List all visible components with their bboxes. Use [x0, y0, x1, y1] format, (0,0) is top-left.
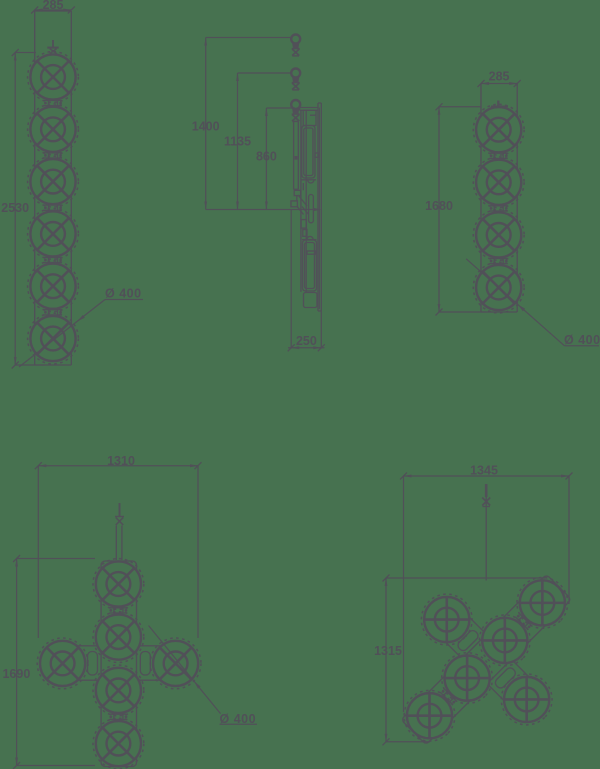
svg-text:1310: 1310 — [107, 454, 135, 468]
svg-text:860: 860 — [256, 149, 277, 163]
svg-text:1345: 1345 — [470, 464, 498, 478]
svg-text:1400: 1400 — [192, 120, 220, 134]
svg-text:1135: 1135 — [224, 134, 251, 148]
svg-text:1680: 1680 — [425, 199, 453, 213]
svg-text:Ø 400: Ø 400 — [220, 712, 257, 726]
svg-text:285: 285 — [43, 0, 64, 12]
svg-text:Ø 400: Ø 400 — [564, 333, 600, 347]
svg-text:Ø 400: Ø 400 — [105, 287, 142, 301]
svg-text:285: 285 — [489, 70, 510, 84]
svg-text:2530: 2530 — [1, 201, 29, 215]
svg-text:1690: 1690 — [2, 667, 30, 681]
svg-text:1315: 1315 — [374, 644, 402, 658]
svg-text:250: 250 — [296, 334, 317, 348]
